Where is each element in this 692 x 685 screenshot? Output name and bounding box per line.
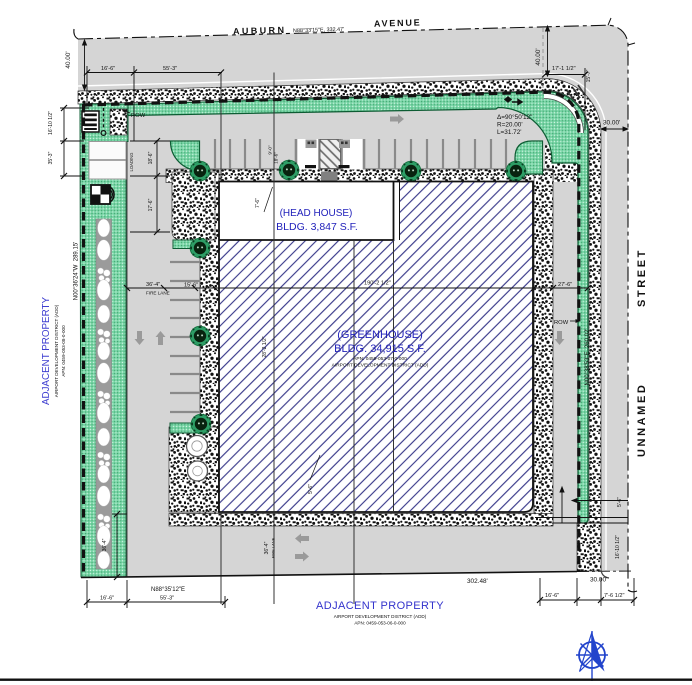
svg-text:35'-3": 35'-3" [48,151,54,164]
svg-text:ROW: ROW [131,113,146,119]
svg-text:5'-6": 5'-6" [308,484,314,494]
svg-text:16'-6": 16'-6" [545,593,559,599]
svg-text:18'-6": 18'-6" [274,152,279,164]
svg-text:16'-6": 16'-6" [101,66,115,72]
svg-text:30.00': 30.00' [603,120,620,127]
svg-text:36'-4": 36'-4" [102,538,108,551]
svg-text:L=31.72': L=31.72' [497,129,522,136]
svg-text:FIRE LANE: FIRE LANE [271,537,276,558]
svg-text:36'-4": 36'-4" [146,282,160,288]
svg-text:(HEAD HOUSE): (HEAD HOUSE) [280,208,353,219]
svg-text:N00°36'24"W 289.15': N00°36'24"W 289.15' [74,242,80,301]
svg-text:ROW: ROW [554,320,569,326]
svg-text:28'-2 1/2": 28'-2 1/2" [262,336,268,357]
svg-text:AIRPORT DEVELOPMENT DISTRICT (: AIRPORT DEVELOPMENT DISTRICT (ADD) [334,614,427,619]
svg-text:APN: 0459-053-06-0-000: APN: 0459-053-06-0-000 [354,621,406,626]
svg-text:FIRE LANE: FIRE LANE [146,291,170,296]
svg-text:Δ=90°50'12": Δ=90°50'12" [497,113,532,121]
svg-text:27'-6": 27'-6" [558,282,572,288]
svg-text:55'-3": 55'-3" [160,596,174,602]
svg-text:16'-10 1/2": 16'-10 1/2" [48,111,54,135]
svg-text:R=20.00': R=20.00' [497,122,523,129]
svg-text:7'-6": 7'-6" [255,198,261,208]
svg-text:AUBURN: AUBURN [233,25,287,36]
svg-text:15'-7": 15'-7" [586,69,592,82]
svg-text:18'-6": 18'-6" [148,151,154,164]
svg-text:UNNAMED: UNNAMED [636,383,648,457]
svg-text:16'-6": 16'-6" [100,596,114,602]
svg-text:302.48': 302.48' [467,578,488,585]
svg-text:ADJACENT PROPERTY: ADJACENT PROPERTY [316,600,444,612]
svg-text:BLDG. 3,847 S.F.: BLDG. 3,847 S.F. [276,221,358,233]
svg-text:16'-10 1/2": 16'-10 1/2" [615,535,621,559]
svg-text:15'-6": 15'-6" [184,283,198,289]
svg-text:40.00': 40.00' [535,48,542,65]
svg-text:36'-4": 36'-4" [264,541,270,554]
svg-text:5'-6": 5'-6" [617,497,623,507]
svg-text:N88°35'12"E: N88°35'12"E [151,587,185,593]
svg-text:AVENUE: AVENUE [374,17,422,28]
svg-text:AIRPORT DEVELOPMENT DISTRICT (: AIRPORT DEVELOPMENT DISTRICT (ADD) [332,363,429,369]
svg-text:30.00': 30.00' [590,577,607,584]
svg-text:9'-0": 9'-0" [268,145,273,155]
svg-text:55'-3": 55'-3" [163,66,177,72]
svg-text:STREET: STREET [636,248,648,307]
svg-text:190'-2 1/2": 190'-2 1/2" [364,281,391,287]
svg-text:17'-1 1/2": 17'-1 1/2" [552,66,576,72]
svg-text:APN: 0459-053-07-0-000: APN: 0459-053-07-0-000 [353,356,407,362]
svg-text:(GREENHOUSE): (GREENHOUSE) [337,329,423,341]
svg-text:BLDG. 34,915 S.F.: BLDG. 34,915 S.F. [334,343,426,355]
svg-text:N00°38'53"E 260.02': N00°38'53"E 260.02' [585,329,591,386]
svg-text:40.00': 40.00' [65,51,72,68]
svg-text:AIRPORT DEVELOPMENT DISTRICT (: AIRPORT DEVELOPMENT DISTRICT (ADD) [54,304,59,397]
svg-text:APN: 0459-053-08-0-000: APN: 0459-053-08-0-000 [61,325,66,377]
svg-text:ADJACENT PROPERTY: ADJACENT PROPERTY [41,297,52,405]
svg-text:LOADING: LOADING [129,153,134,172]
svg-text:17'-6": 17'-6" [148,198,154,211]
svg-text:7'-6 1/2": 7'-6 1/2" [604,593,624,599]
